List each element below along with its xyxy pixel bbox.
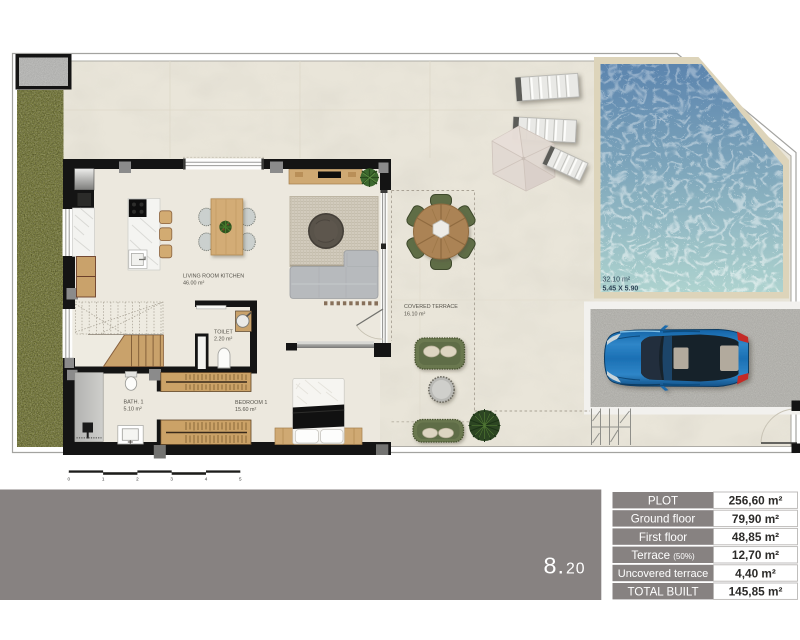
svg-text:3: 3 xyxy=(170,477,173,482)
svg-text:0: 0 xyxy=(68,477,71,482)
svg-text:TOTAL BUILT: TOTAL BUILT xyxy=(627,585,698,598)
svg-text:4: 4 xyxy=(205,477,208,482)
svg-text:4,40 m²: 4,40 m² xyxy=(735,566,776,580)
svg-text:2.20 m²: 2.20 m² xyxy=(214,337,232,343)
svg-text:TOILET: TOILET xyxy=(214,330,233,336)
svg-text:46.00 m²: 46.00 m² xyxy=(183,281,204,287)
svg-text:145,85 m²: 145,85 m² xyxy=(729,585,783,599)
svg-text:15.60 m²: 15.60 m² xyxy=(235,407,256,413)
svg-text:PLOT: PLOT xyxy=(648,494,678,507)
svg-text:2: 2 xyxy=(136,477,139,482)
svg-text:79,90 m²: 79,90 m² xyxy=(732,512,779,526)
svg-text:BATH. 1: BATH. 1 xyxy=(124,400,144,406)
svg-text:1: 1 xyxy=(102,477,105,482)
svg-text:256,60 m²: 256,60 m² xyxy=(729,494,783,508)
svg-text:First floor: First floor xyxy=(639,531,687,544)
svg-text:5: 5 xyxy=(239,477,242,482)
svg-text:5.45 X 5.90: 5.45 X 5.90 xyxy=(603,286,639,293)
svg-text:COVERED TERRACE: COVERED TERRACE xyxy=(404,304,458,310)
svg-text:12,70 m²: 12,70 m² xyxy=(732,548,779,562)
svg-text:BEDROOM 1: BEDROOM 1 xyxy=(235,400,267,406)
svg-text:LIVING ROOM KITCHEN: LIVING ROOM KITCHEN xyxy=(183,274,244,280)
svg-text:5.10 m²: 5.10 m² xyxy=(124,407,142,413)
svg-text:32.10 m²: 32.10 m² xyxy=(603,277,631,284)
svg-text:16.10 m²: 16.10 m² xyxy=(404,312,425,318)
svg-text:Uncovered terrace: Uncovered terrace xyxy=(618,568,709,580)
svg-text:48,85 m²: 48,85 m² xyxy=(732,530,779,544)
svg-text:Ground floor: Ground floor xyxy=(631,513,696,526)
